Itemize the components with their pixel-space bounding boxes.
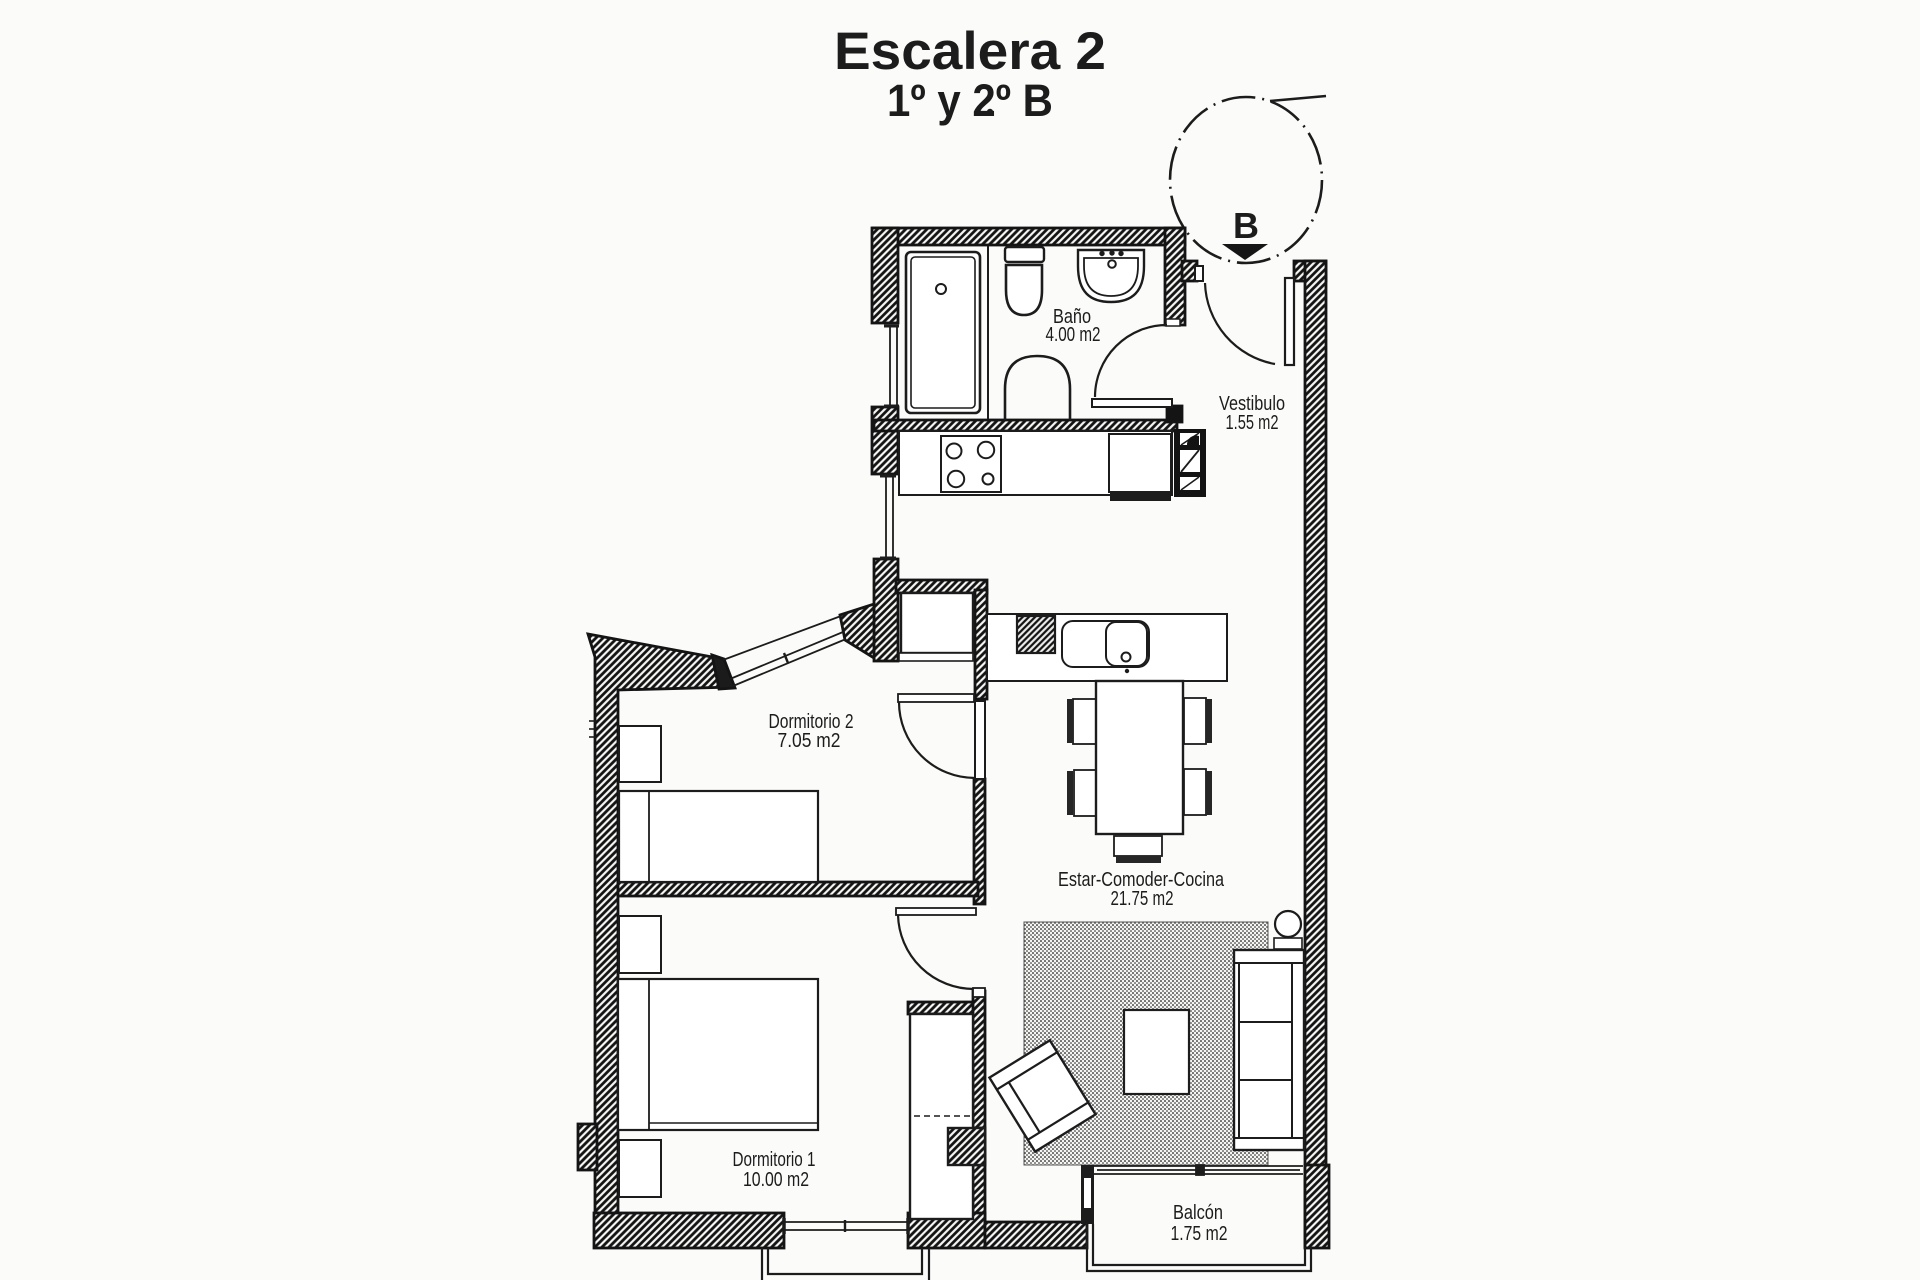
svg-text:1.75 m2: 1.75 m2 [1171,1223,1228,1245]
svg-text:Escalera 2: Escalera 2 [834,22,1106,81]
svg-text:4.00 m2: 4.00 m2 [1046,324,1101,346]
svg-text:10.00 m2: 10.00 m2 [743,1169,809,1191]
svg-text:Dormitorio 1: Dormitorio 1 [733,1149,816,1171]
svg-text:Balcón: Balcón [1173,1202,1223,1224]
svg-text:B: B [1233,205,1259,246]
svg-text:1.55 m2: 1.55 m2 [1226,412,1279,434]
svg-text:1º y 2º B: 1º y 2º B [887,75,1053,126]
svg-text:7.05 m2: 7.05 m2 [778,730,841,752]
svg-text:21.75 m2: 21.75 m2 [1111,888,1174,910]
